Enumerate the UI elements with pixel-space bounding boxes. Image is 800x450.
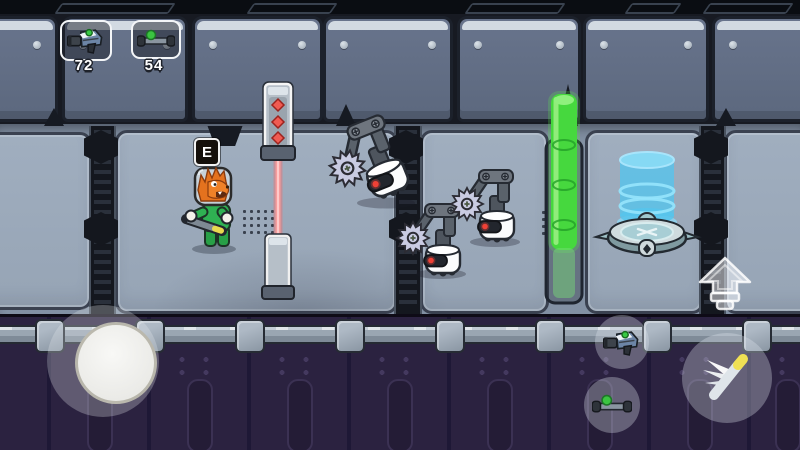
game-screen: E 72 54 xyxy=(0,0,800,450)
blaster-icon xyxy=(603,329,641,356)
shoot-button[interactable] xyxy=(595,315,649,369)
hud-count-blaster: 72 xyxy=(54,57,114,74)
hud-count-hoverboard: 54 xyxy=(124,57,184,74)
hoverboard-icon xyxy=(592,394,632,417)
interact-key-prompt[interactable]: E xyxy=(194,138,220,166)
up-arrow-icon xyxy=(700,258,750,293)
hud-slot-blaster[interactable] xyxy=(60,20,112,61)
feather-icon xyxy=(699,350,755,406)
interact-key-label: E xyxy=(202,144,212,161)
blaster-icon xyxy=(67,27,105,54)
player-character xyxy=(178,160,248,255)
hoverboard-icon xyxy=(137,29,175,51)
jump-button[interactable] xyxy=(694,256,756,316)
joystick-knob[interactable] xyxy=(75,322,157,404)
hud-slot-hoverboard[interactable] xyxy=(131,20,181,59)
dash-button[interactable] xyxy=(682,333,772,423)
hoverboard-button[interactable] xyxy=(584,377,640,433)
